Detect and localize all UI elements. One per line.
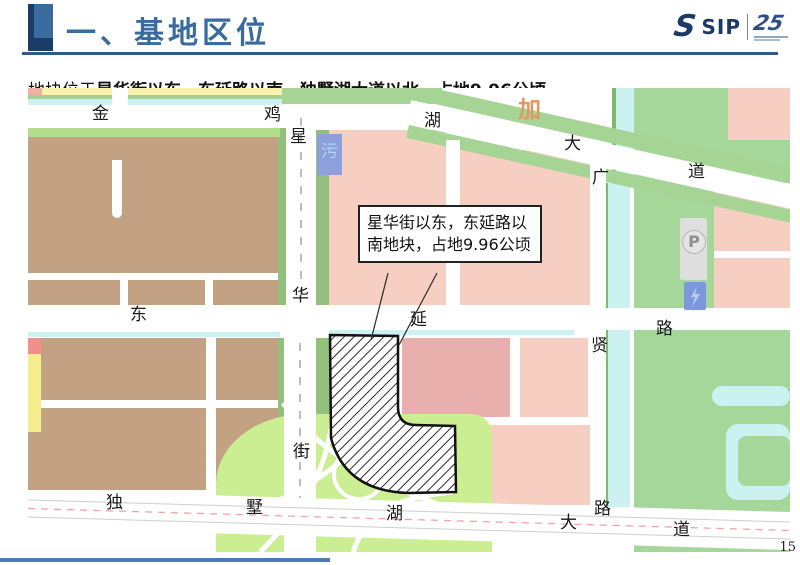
site-hatch [330,335,456,493]
logo-fineprint-bar [754,36,788,38]
page-title: 一、基地区位 [66,8,270,52]
title-logo-mark-front [34,4,53,38]
logo-divider [747,14,748,40]
logo-fineprint-bar [754,39,780,41]
site-location-map: 污 P [28,88,790,552]
site-callout-text: 星华街以东，东延路以南地块，占地9.96公顷 [367,213,531,254]
slide: 一、基地区位 S SIP 25 地块位于星华街以东，东延路以南，独墅湖大道以北，… [0,0,800,565]
sip-logo: S SIP 25 [674,8,788,46]
site-callout: 星华街以东，东延路以南地块，占地9.96公顷 [358,205,542,263]
footer-accent-bar [0,558,330,562]
sip-s-icon: S [672,12,698,42]
title-underline [22,52,778,55]
anniversary-25-mark: 25 [754,13,788,41]
sip-wordmark: SIP [701,15,741,39]
callout-leader-lines [371,273,437,345]
page-number: 15 [779,540,796,555]
map-overlay [28,88,790,552]
